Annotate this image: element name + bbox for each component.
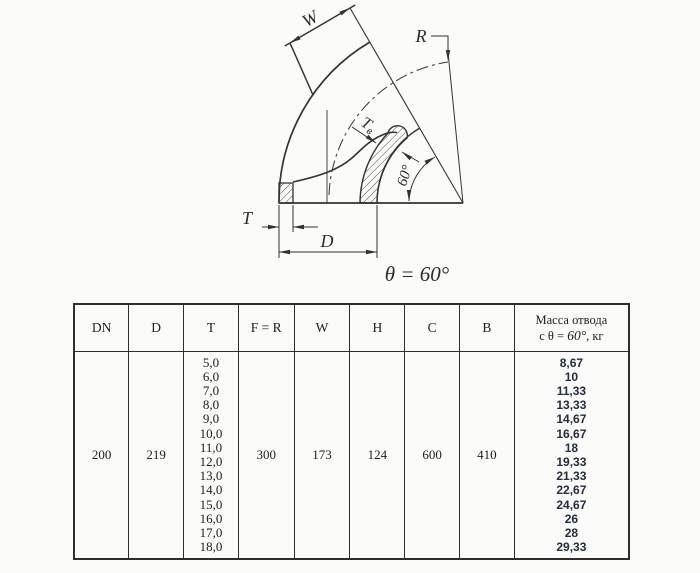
mass-header-line1: Масса отвода — [515, 313, 628, 328]
value-line: 6,0 — [184, 370, 238, 384]
cell-c: 600 — [405, 352, 460, 560]
value-line: 10,0 — [184, 427, 238, 441]
value-line: 10 — [515, 370, 628, 384]
mass-header-angle: 60° — [567, 328, 586, 343]
w-dimension-label: W — [299, 5, 324, 31]
value-line: 15,0 — [184, 498, 238, 512]
value-line: 28 — [515, 526, 628, 540]
col-header-w: W — [294, 304, 350, 352]
value-line: 24,67 — [515, 498, 628, 512]
mass-header-line2: с θ = 60°, кг — [515, 328, 628, 344]
tv-dimension-label: Tв — [357, 114, 379, 138]
col-header-h: H — [350, 304, 405, 352]
value-line: 18,0 — [184, 540, 238, 554]
mass-header-suffix: , кг — [586, 329, 603, 343]
cell-dn: 200 — [74, 352, 129, 560]
t-values-list: 5,06,07,08,09,010,011,012,013,014,015,01… — [184, 356, 238, 555]
value-line: 16,67 — [515, 427, 628, 441]
value-line: 13,33 — [515, 398, 628, 412]
cell-h: 124 — [350, 352, 405, 560]
header-row: DN D T F = R W H C B Масса отвода с θ = … — [74, 304, 629, 352]
value-line: 8,67 — [515, 356, 628, 370]
value-line: 14,67 — [515, 412, 628, 426]
cell-b: 410 — [460, 352, 515, 560]
value-line: 8,0 — [184, 398, 238, 412]
theta-caption: θ = 60° — [385, 262, 450, 286]
value-line: 26 — [515, 512, 628, 526]
value-line: 21,33 — [515, 469, 628, 483]
value-line: 18 — [515, 441, 628, 455]
col-header-b: B — [460, 304, 515, 352]
col-header-t: T — [184, 304, 239, 352]
data-row: 200 219 5,06,07,08,09,010,011,012,013,01… — [74, 352, 629, 560]
page: W R T D Tв 60° θ = 60° DN D T F = R W H … — [0, 0, 700, 573]
r-dimension-label: R — [415, 26, 427, 46]
value-line: 14,0 — [184, 483, 238, 497]
value-line: 22,67 — [515, 483, 628, 497]
value-line: 16,0 — [184, 512, 238, 526]
value-line: 19,33 — [515, 455, 628, 469]
dimension-lines — [262, 36, 463, 258]
col-header-d: D — [129, 304, 184, 352]
mass-header-prefix: с θ = — [539, 329, 567, 343]
cell-fr: 300 — [238, 352, 294, 560]
value-line: 5,0 — [184, 356, 238, 370]
value-line: 12,0 — [184, 455, 238, 469]
d-dimension-label: D — [320, 231, 334, 251]
cell-w: 173 — [294, 352, 350, 560]
cell-t-values: 5,06,07,08,09,010,011,012,013,014,015,01… — [184, 352, 239, 560]
value-line: 13,0 — [184, 469, 238, 483]
t-dimension-label: T — [242, 208, 254, 228]
value-line: 17,0 — [184, 526, 238, 540]
value-line: 29,33 — [515, 540, 628, 554]
cell-mass-values: 8,671011,3313,3314,6716,671819,3321,3322… — [514, 352, 629, 560]
value-line: 11,0 — [184, 441, 238, 455]
value-line: 11,33 — [515, 384, 628, 398]
col-header-fr: F = R — [238, 304, 294, 352]
cell-d: 219 — [129, 352, 184, 560]
value-line: 7,0 — [184, 384, 238, 398]
dimensions-table: DN D T F = R W H C B Масса отвода с θ = … — [73, 303, 630, 560]
mass-values-list: 8,671011,3313,3314,6716,671819,3321,3322… — [515, 356, 628, 555]
col-header-c: C — [405, 304, 460, 352]
col-header-dn: DN — [74, 304, 129, 352]
col-header-mass: Масса отвода с θ = 60°, кг — [514, 304, 629, 352]
value-line: 9,0 — [184, 412, 238, 426]
outer-wall-section — [279, 183, 293, 203]
